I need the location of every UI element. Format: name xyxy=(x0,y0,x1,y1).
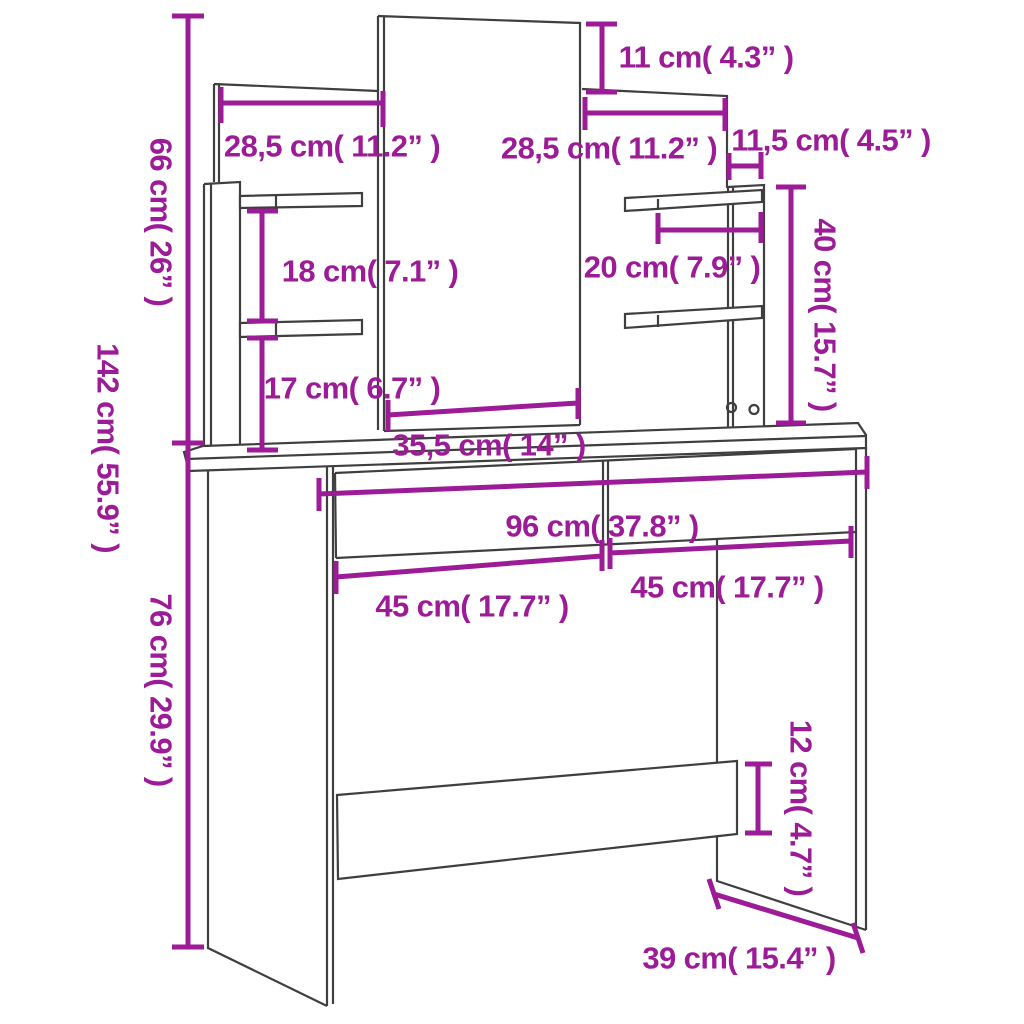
label-table-height: 76 cm( 29.9” ) xyxy=(144,593,179,786)
dim-line-right-unit-height xyxy=(776,187,806,423)
right-shelf-upper xyxy=(625,190,762,211)
dim-line-right-shelf-length xyxy=(658,212,761,244)
left-side-board-edges xyxy=(204,182,240,452)
label-mirror-top-offset: 11 cm( 4.3” ) xyxy=(619,40,794,75)
left-leg-panel xyxy=(208,467,333,1006)
back-rail xyxy=(337,761,737,879)
label-back-rail-height: 12 cm( 4.7” ) xyxy=(784,720,819,897)
left-side-board xyxy=(204,182,240,452)
dim-line-mirror-top-offset xyxy=(586,24,617,92)
label-table-depth: 39 cm( 15.4” ) xyxy=(642,941,835,976)
right-shelf-lower xyxy=(625,306,762,328)
dim-line-drawer-left xyxy=(336,540,602,594)
dim-line-left-shelf-gap xyxy=(247,211,278,321)
left-shelf-upper-slab xyxy=(240,193,362,208)
label-drawer-left-width: 45 cm( 17.7” ) xyxy=(375,589,568,624)
label-left-lower-gap: 17 cm( 6.7” ) xyxy=(264,371,441,406)
label-upper-height: 66 cm( 26” ) xyxy=(144,138,179,307)
label-right-shelf-length: 20 cm( 7.9” ) xyxy=(584,250,761,285)
dim-line-left-panel-width xyxy=(221,87,383,127)
label-left-panel-width: 28,5 cm( 11.2” ) xyxy=(224,129,440,164)
label-right-panel-width: 28,5 cm( 11.2” ) xyxy=(501,131,717,166)
mirror xyxy=(378,16,580,431)
right-shelf-lower-slab xyxy=(625,306,762,328)
right-shelf-upper-slab xyxy=(625,190,762,211)
back-rail-slab xyxy=(337,761,737,879)
dressing-table-dimension-diagram: 66 cm( 26” ) 142 cm( 55.9” ) 76 cm( 29.9… xyxy=(0,0,1024,1024)
dim-line-right-panel-width xyxy=(585,97,725,131)
mirror-outline xyxy=(378,16,580,431)
label-total-height: 142 cm( 55.9” ) xyxy=(91,343,126,553)
label-side-board-depth: 11,5 cm( 4.5” ) xyxy=(731,123,931,158)
label-left-shelf-gap: 18 cm( 7.1” ) xyxy=(282,254,459,289)
diagram-canvas: 66 cm( 26” ) 142 cm( 55.9” ) 76 cm( 29.9… xyxy=(0,0,1024,1024)
left-shelf-upper xyxy=(240,193,362,208)
left-leg-edges xyxy=(208,467,333,1006)
label-mirror-width: 35,5 cm( 14” ) xyxy=(392,428,585,463)
label-tabletop-width: 96 cm( 37.8” ) xyxy=(505,509,698,544)
label-right-unit-height: 40 cm( 15.7” ) xyxy=(808,218,843,411)
dim-line-back-rail-height xyxy=(745,764,772,833)
label-drawer-right-width: 45 cm( 17.7” ) xyxy=(630,570,823,605)
cam-hole-right xyxy=(750,405,759,414)
